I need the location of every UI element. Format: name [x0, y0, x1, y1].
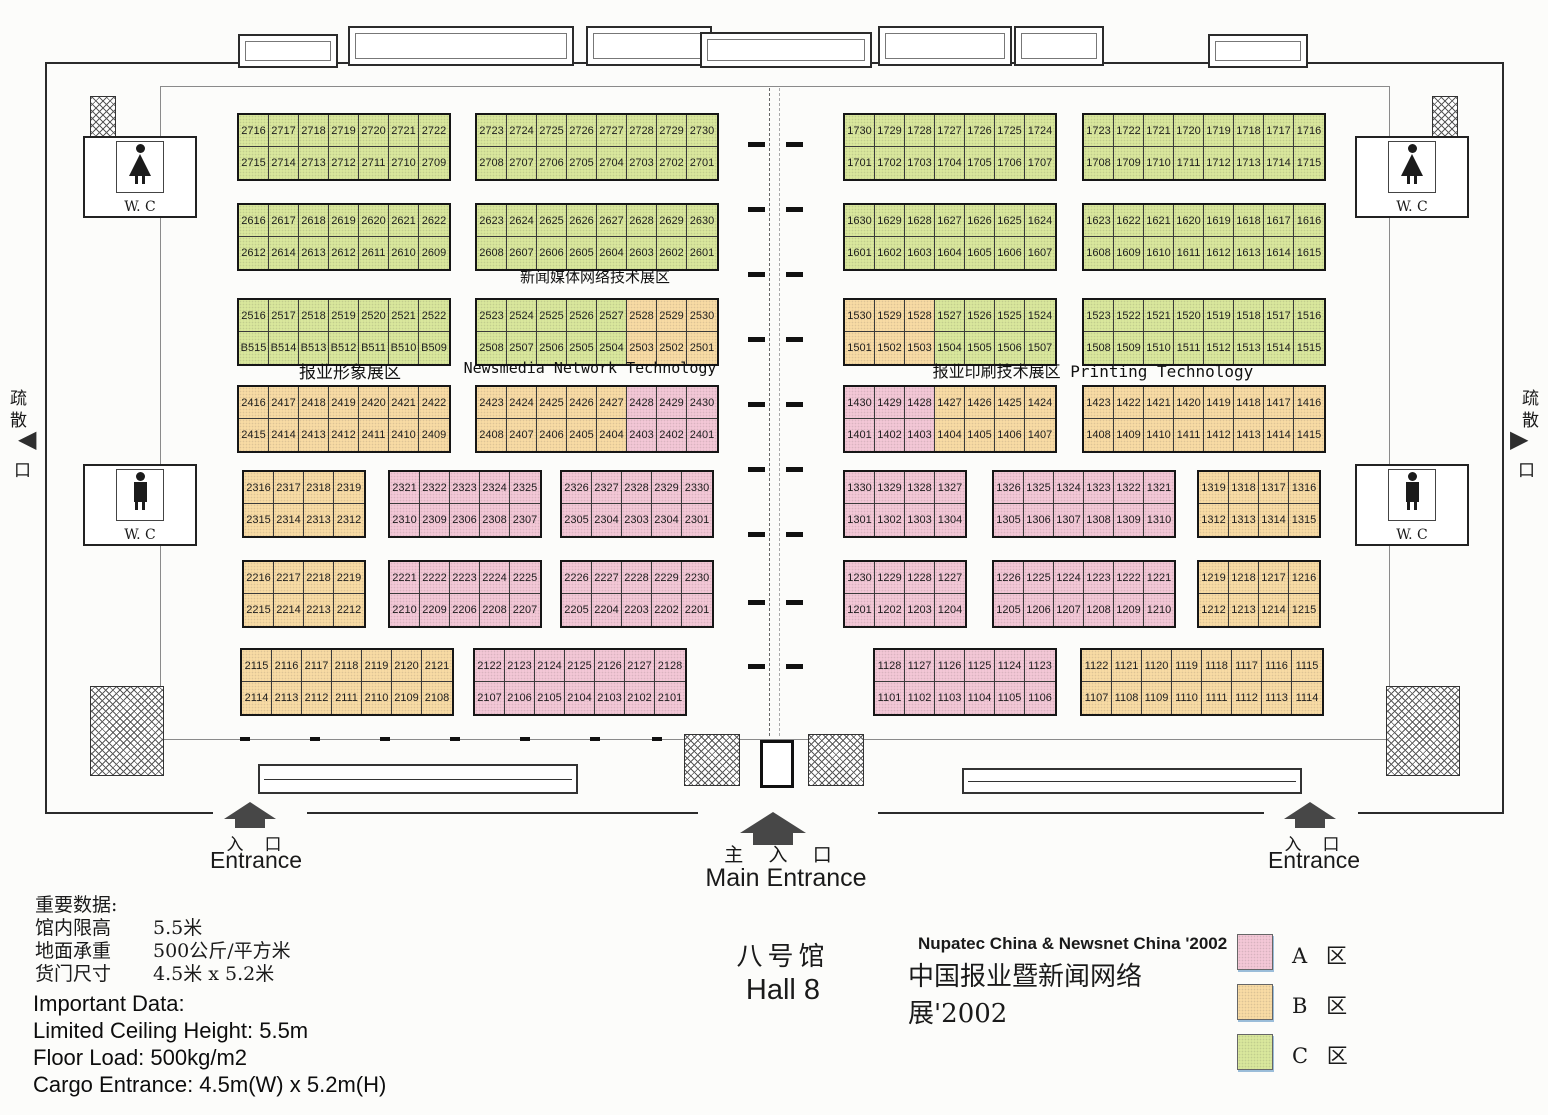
booth-cell: 2111 — [332, 682, 362, 714]
booth-cell: 2120 — [392, 650, 422, 682]
booth-cell: 2215 — [244, 594, 274, 626]
wc-label: W. C — [1357, 527, 1467, 543]
booth-cell: 2325 — [510, 472, 540, 504]
booth-cell: 2430 — [687, 387, 717, 419]
booth-cell: 2202 — [652, 594, 682, 626]
booth-cell: 2626 — [567, 205, 597, 237]
booth-cell: 2517 — [269, 300, 299, 332]
booth-block: 22162217221822192215221422132212 — [242, 560, 366, 628]
booth-cell: 1618 — [1234, 205, 1264, 237]
wc-room-bottom-left: W. C — [83, 464, 197, 546]
booth-cell: 1705 — [965, 147, 995, 179]
booth-cell: 2602 — [657, 237, 687, 269]
booth-cell: 2711 — [359, 147, 389, 179]
booth-block: 2716271727182719272027212722271527142713… — [237, 113, 451, 181]
booth-cell: 2718 — [299, 115, 329, 147]
booth-cell: 2401 — [687, 419, 717, 451]
booth-cell: 2221 — [390, 562, 420, 594]
booth-cell: 2617 — [269, 205, 299, 237]
booth-cell: 1712 — [1204, 147, 1234, 179]
booth-cell: 2614 — [269, 237, 299, 269]
booth-cell: 2402 — [657, 419, 687, 451]
booth-cell: 1301 — [845, 504, 875, 536]
corridor-tick — [786, 532, 803, 537]
booth-cell: 1620 — [1174, 205, 1204, 237]
booth-cell: 2107 — [475, 682, 505, 714]
booth-cell: 2530 — [687, 300, 717, 332]
booth-cell: 1121 — [1112, 650, 1142, 682]
corridor-tick — [786, 337, 803, 342]
booth-cell: 1407 — [1025, 419, 1055, 451]
booth-cell: 1316 — [1289, 472, 1319, 504]
booth-cell: 2616 — [239, 205, 269, 237]
booth-cell: 1125 — [965, 650, 995, 682]
booth-cell: 1218 — [1229, 562, 1259, 594]
booth-cell: 1726 — [965, 115, 995, 147]
booth-cell: 1411 — [1174, 419, 1204, 451]
booth-cell: 1604 — [935, 237, 965, 269]
booth-cell: 1104 — [965, 682, 995, 714]
booth-cell: 2427 — [597, 387, 627, 419]
booth-cell: 1114 — [1292, 682, 1322, 714]
booth-cell: 1111 — [1202, 682, 1232, 714]
booth-cell: 1122 — [1082, 650, 1112, 682]
booth-cell: 1118 — [1202, 650, 1232, 682]
booth-block: 1423142214211420141914181417141614081409… — [1082, 385, 1326, 453]
booth-cell: 1227 — [935, 562, 965, 594]
booth-cell: 2126 — [595, 650, 625, 682]
booth-cell: 2609 — [419, 237, 449, 269]
evacuation-exit-right: 疏 散 ▶ 口 — [1502, 384, 1548, 488]
booth-cell: 2128 — [655, 650, 685, 682]
booth-cell: 2118 — [332, 650, 362, 682]
booth-cell: 1302 — [875, 504, 905, 536]
main-entrance-door — [760, 740, 794, 788]
booth-cell: 2229 — [652, 562, 682, 594]
female-icon — [116, 141, 164, 193]
booth-cell: 2228 — [622, 562, 652, 594]
area-label-newsmedia-cn: 新闻媒体网络技术展区 — [475, 266, 715, 287]
booth-cell: 1524 — [1025, 300, 1055, 332]
booth-cell: 1105 — [995, 682, 1025, 714]
booth-cell: 1426 — [965, 387, 995, 419]
booth-cell: 2719 — [329, 115, 359, 147]
booth-cell: 1123 — [1025, 650, 1055, 682]
entrance-arrow-right-icon — [1282, 802, 1338, 828]
corridor-tick — [786, 467, 803, 472]
booth-cell: 1625 — [995, 205, 1025, 237]
top-structure — [586, 26, 712, 66]
booth-cell: 1526 — [965, 300, 995, 332]
booth-cell: 2125 — [565, 650, 595, 682]
wc-label: W. C — [85, 199, 195, 215]
booth-cell: 1303 — [905, 504, 935, 536]
booth-block: 1128112711261125112411231101110211031104… — [873, 648, 1057, 716]
booth-cell: 2201 — [682, 594, 712, 626]
booth-cell: 1202 — [875, 594, 905, 626]
corridor-tick — [748, 142, 765, 147]
booth-cell: 1226 — [994, 562, 1024, 594]
top-structure — [878, 26, 1012, 66]
booth-cell: 2524 — [507, 300, 537, 332]
booth-cell: 1106 — [1025, 682, 1055, 714]
floor-plan-canvas: W. C W. C W. C W. C 疏 散 ◀ 口 疏 散 ▶ 口 2716… — [0, 0, 1548, 1115]
booth-block: 1523152215211520151915181517151615081509… — [1082, 298, 1326, 366]
booth-cell: 2222 — [420, 562, 450, 594]
entrance-column-hatch — [808, 734, 864, 786]
booth-cell: 1415 — [1294, 419, 1324, 451]
booth-cell: 2419 — [329, 387, 359, 419]
booth-cell: 2620 — [359, 205, 389, 237]
booth-cell: 2722 — [419, 115, 449, 147]
booth-cell: 1110 — [1172, 682, 1202, 714]
booth-cell: 1727 — [935, 115, 965, 147]
booth-cell: 2525 — [537, 300, 567, 332]
booth-cell: 2610 — [389, 237, 419, 269]
booth-block: 2115211621172118211921202121211421132112… — [240, 648, 454, 716]
booth-cell: 1416 — [1294, 387, 1324, 419]
booth-cell: 2625 — [537, 205, 567, 237]
booth-cell: 2114 — [242, 682, 272, 714]
booth-cell: 2313 — [304, 504, 334, 536]
booth-cell: 2207 — [510, 594, 540, 626]
booth-cell: 1219 — [1199, 562, 1229, 594]
booth-cell: 2326 — [562, 472, 592, 504]
booth-cell: 2404 — [597, 419, 627, 451]
booth-cell: 1401 — [845, 419, 875, 451]
booth-cell: 2713 — [299, 147, 329, 179]
legend-label-zone-c: C 区 — [1292, 1040, 1354, 1070]
booth-cell: 1710 — [1144, 147, 1174, 179]
booth-block: 2122212321242125212621272128210721062105… — [473, 648, 687, 716]
booth-cell: 2122 — [475, 650, 505, 682]
corridor-tick — [786, 402, 803, 407]
booth-cell: 1307 — [1054, 504, 1084, 536]
booth-cell: 2629 — [657, 205, 687, 237]
booth-cell: 2702 — [657, 147, 687, 179]
booth-cell: 1310 — [1144, 504, 1174, 536]
booth-block: 2423242424252426242724282429243024082407… — [475, 385, 719, 453]
booth-cell: 2330 — [682, 472, 712, 504]
booth-cell: 1610 — [1144, 237, 1174, 269]
booth-cell: 2409 — [419, 419, 449, 451]
booth-cell: 1517 — [1264, 300, 1294, 332]
booth-cell: 2309 — [420, 504, 450, 536]
legend-swatch-zone-b — [1237, 984, 1273, 1020]
booth-cell: 2225 — [510, 562, 540, 594]
booth-cell: 1424 — [1025, 387, 1055, 419]
booth-cell: 2318 — [304, 472, 334, 504]
booth-cell: 2406 — [537, 419, 567, 451]
booth-cell: 2623 — [477, 205, 507, 237]
booth-cell: 1217 — [1259, 562, 1289, 594]
booth-block: 1623162216211620161916181617161616081609… — [1082, 203, 1326, 271]
booth-cell: 2424 — [507, 387, 537, 419]
data-line: Important Data: — [33, 990, 386, 1017]
booth-cell: 2425 — [537, 387, 567, 419]
booth-cell: 2627 — [597, 205, 627, 237]
booth-cell: 1603 — [905, 237, 935, 269]
hall-title-en: Hall 8 — [724, 974, 842, 1007]
main-entrance-label-en: Main Entrance — [696, 864, 876, 893]
booth-cell: 2516 — [239, 300, 269, 332]
booth-cell: 1228 — [905, 562, 935, 594]
booth-cell: 1518 — [1234, 300, 1264, 332]
booth-cell: 1418 — [1234, 387, 1264, 419]
booth-cell: 1409 — [1114, 419, 1144, 451]
booth-cell: 2230 — [682, 562, 712, 594]
booth-cell: 2413 — [299, 419, 329, 451]
corridor-tick — [786, 207, 803, 212]
entrance-left-label-en: Entrance — [196, 847, 316, 874]
booth-cell: 1428 — [905, 387, 935, 419]
corridor-tick — [748, 402, 765, 407]
booth-cell: 1210 — [1144, 594, 1174, 626]
entrance-right-label-en: Entrance — [1254, 847, 1374, 874]
booth-cell: 1213 — [1229, 594, 1259, 626]
booth-cell: 1624 — [1025, 205, 1055, 237]
booth-cell: 2307 — [510, 504, 540, 536]
booth-cell: 1321 — [1144, 472, 1174, 504]
booth-cell: 1520 — [1174, 300, 1204, 332]
booth-cell: 1322 — [1114, 472, 1144, 504]
top-structure — [348, 26, 574, 66]
booth-cell: 2715 — [239, 147, 269, 179]
booth-cell: 2321 — [390, 472, 420, 504]
booth-block: 12301229122812271201120212031204 — [843, 560, 967, 628]
corridor-tick — [748, 207, 765, 212]
loading-door-strip — [962, 768, 1302, 794]
shaft-hatch — [90, 96, 116, 140]
booth-cell: 1414 — [1264, 419, 1294, 451]
data-label: 货门尺寸 — [35, 963, 153, 986]
booth-cell: 1522 — [1114, 300, 1144, 332]
booth-cell: 2712 — [329, 147, 359, 179]
booth-cell: 1701 — [845, 147, 875, 179]
booth-cell: 2121 — [422, 650, 452, 682]
booth-cell: 2312 — [334, 504, 364, 536]
booth-cell: 2317 — [274, 472, 304, 504]
booth-cell: 1201 — [845, 594, 875, 626]
booth-cell: 2116 — [272, 650, 302, 682]
booth-cell: 2112 — [302, 682, 332, 714]
booth-cell: 1126 — [935, 650, 965, 682]
booth-cell: 2710 — [389, 147, 419, 179]
booth-cell: 2608 — [477, 237, 507, 269]
booth-cell: 2327 — [592, 472, 622, 504]
booth-cell: 1521 — [1144, 300, 1174, 332]
corridor-centerline — [769, 88, 770, 736]
booth-cell: 2227 — [592, 562, 622, 594]
booth-cell: 1326 — [994, 472, 1024, 504]
evac-arrow-left-icon: ◀ — [18, 428, 36, 452]
wc-room-top-left: W. C — [83, 136, 197, 218]
area-label-newsmedia-en: Newsmedia Network Technology — [460, 359, 720, 377]
booth-cell: 1614 — [1264, 237, 1294, 269]
booth-cell: 1627 — [935, 205, 965, 237]
top-structure — [700, 32, 872, 68]
booth-cell: 2709 — [419, 147, 449, 179]
booth-cell: 2212 — [334, 594, 364, 626]
data-label: 馆内限高 — [35, 917, 153, 940]
booth-cell: 1209 — [1114, 594, 1144, 626]
booth-cell: 1108 — [1112, 682, 1142, 714]
event-title-en: Nupatec China & Newsnet China '2002 — [918, 934, 1228, 954]
booth-cell: 2423 — [477, 387, 507, 419]
booth-cell: 2301 — [682, 504, 712, 536]
top-structure — [238, 34, 338, 68]
booth-block: 1630162916281627162616251624160116021603… — [843, 203, 1057, 271]
booth-cell: 1205 — [994, 594, 1024, 626]
booth-cell: 2216 — [244, 562, 274, 594]
booth-cell: 2717 — [269, 115, 299, 147]
booth-cell: 1420 — [1174, 387, 1204, 419]
booth-cell: 1630 — [845, 205, 875, 237]
booth-cell: 2208 — [480, 594, 510, 626]
corridor-tick — [748, 664, 765, 669]
booth-cell: 1327 — [935, 472, 965, 504]
booth-cell: 2724 — [507, 115, 537, 147]
booth-cell: 1225 — [1024, 562, 1054, 594]
booth-cell: 2322 — [420, 472, 450, 504]
booth-cell: 2217 — [274, 562, 304, 594]
booth-cell: 2523 — [477, 300, 507, 332]
entrance-column-hatch — [684, 734, 740, 786]
booth-cell: 1103 — [935, 682, 965, 714]
booth-cell: 2421 — [389, 387, 419, 419]
booth-cell: 2630 — [687, 205, 717, 237]
booth-cell: 1607 — [1025, 237, 1055, 269]
booth-cell: 2119 — [362, 650, 392, 682]
corridor-tick — [748, 532, 765, 537]
data-line: Cargo Entrance: 4.5m(W) x 5.2m(H) — [33, 1071, 386, 1098]
floor-mark — [380, 737, 390, 741]
shaft-hatch — [1432, 96, 1458, 140]
booth-cell: 2124 — [535, 650, 565, 682]
booth-cell: 1402 — [875, 419, 905, 451]
booth-cell: 1315 — [1289, 504, 1319, 536]
booth-cell: 1206 — [1024, 594, 1054, 626]
booth-cell: 2408 — [477, 419, 507, 451]
booth-cell: 2601 — [687, 237, 717, 269]
booth-cell: 1221 — [1144, 562, 1174, 594]
data-value: 500公斤/平方米 — [153, 940, 291, 963]
booth-cell: 1626 — [965, 205, 995, 237]
booth-block: 2221222222232224222522102209220622082207 — [388, 560, 542, 628]
stair-hatch — [90, 686, 164, 776]
booth-cell: 1606 — [995, 237, 1025, 269]
booth-cell: 2417 — [269, 387, 299, 419]
booth-cell: 2324 — [480, 472, 510, 504]
evac-char: 口 — [1518, 456, 1535, 481]
wc-label: W. C — [85, 527, 195, 543]
booth-cell: 1711 — [1174, 147, 1204, 179]
data-line: Floor Load: 500kg/m2 — [33, 1044, 386, 1071]
booth-cell: 1116 — [1262, 650, 1292, 682]
male-icon — [1388, 469, 1436, 521]
booth-cell: 2519 — [329, 300, 359, 332]
booth-cell: 2701 — [687, 147, 717, 179]
booth-cell: 2728 — [627, 115, 657, 147]
booth-cell: 2723 — [477, 115, 507, 147]
booth-cell: 1113 — [1262, 682, 1292, 714]
booth-cell: 1406 — [995, 419, 1025, 451]
legend-swatch-zone-a — [1237, 934, 1273, 970]
booth-cell: 1601 — [845, 237, 875, 269]
evac-char: 口 — [14, 456, 31, 481]
booth-cell: 1330 — [845, 472, 875, 504]
booth-cell: 1128 — [875, 650, 905, 682]
booth-cell: 1528 — [905, 300, 935, 332]
booth-cell: 2308 — [480, 504, 510, 536]
data-value: 4.5米 x 5.2米 — [153, 963, 274, 986]
booth-cell: 2420 — [359, 387, 389, 419]
booth-cell: 2612 — [329, 237, 359, 269]
booth-cell: 2704 — [597, 147, 627, 179]
booth-cell: 2115 — [242, 650, 272, 682]
booth-cell: 2226 — [562, 562, 592, 594]
booth-cell: 2123 — [505, 650, 535, 682]
booth-cell: 1721 — [1144, 115, 1174, 147]
booth-cell: 2619 — [329, 205, 359, 237]
booth-cell: 2721 — [389, 115, 419, 147]
booth-cell: 2101 — [655, 682, 685, 714]
booth-cell: 2105 — [535, 682, 565, 714]
booth-block: 2616261726182619262026212622261226142613… — [237, 203, 451, 271]
booth-cell: 1107 — [1082, 682, 1112, 714]
booth-cell: 2725 — [537, 115, 567, 147]
booth-cell: 2106 — [505, 682, 535, 714]
booth-cell: 1112 — [1232, 682, 1262, 714]
booth-cell: 1115 — [1292, 650, 1322, 682]
booth-cell: 1629 — [875, 205, 905, 237]
booth-cell: 2102 — [625, 682, 655, 714]
booth-cell: 2310 — [390, 504, 420, 536]
booth-cell: 2607 — [507, 237, 537, 269]
booth-cell: 1730 — [845, 115, 875, 147]
booth-cell: 2403 — [627, 419, 657, 451]
booth-cell: 1718 — [1234, 115, 1264, 147]
booth-cell: 2716 — [239, 115, 269, 147]
booth-cell: 2527 — [597, 300, 627, 332]
booth-cell: 2209 — [420, 594, 450, 626]
evacuation-exit-left: 疏 散 ◀ 口 — [2, 384, 48, 488]
booth-cell: 1709 — [1114, 147, 1144, 179]
booth-block: 2523252425252526252725282529253025082507… — [475, 298, 719, 366]
booth-cell: 1519 — [1204, 300, 1234, 332]
booth-cell: 1609 — [1114, 237, 1144, 269]
booth-cell: 1306 — [1024, 504, 1054, 536]
booth-cell: 2205 — [562, 594, 592, 626]
booth-block: 13191318131713161312131313141315 — [1197, 470, 1321, 538]
area-label-image-cn: 报业形象展区 — [250, 358, 450, 383]
booth-cell: 2708 — [477, 147, 507, 179]
data-label: 地面承重 — [35, 940, 153, 963]
booth-cell: 1207 — [1054, 594, 1084, 626]
booth-cell: 1325 — [1024, 472, 1054, 504]
booth-block: 1723172217211720171917181717171617081709… — [1082, 113, 1326, 181]
booth-cell: 2316 — [244, 472, 274, 504]
corridor-tick — [748, 337, 765, 342]
booth-cell: 1623 — [1084, 205, 1114, 237]
booth-cell: 1723 — [1084, 115, 1114, 147]
booth-cell: 1515 — [1294, 332, 1324, 364]
booth-cell: 1329 — [875, 472, 905, 504]
booth-cell: 1707 — [1025, 147, 1055, 179]
booth-cell: 1305 — [994, 504, 1024, 536]
booth-cell: 1222 — [1114, 562, 1144, 594]
booth-cell: 2613 — [299, 237, 329, 269]
